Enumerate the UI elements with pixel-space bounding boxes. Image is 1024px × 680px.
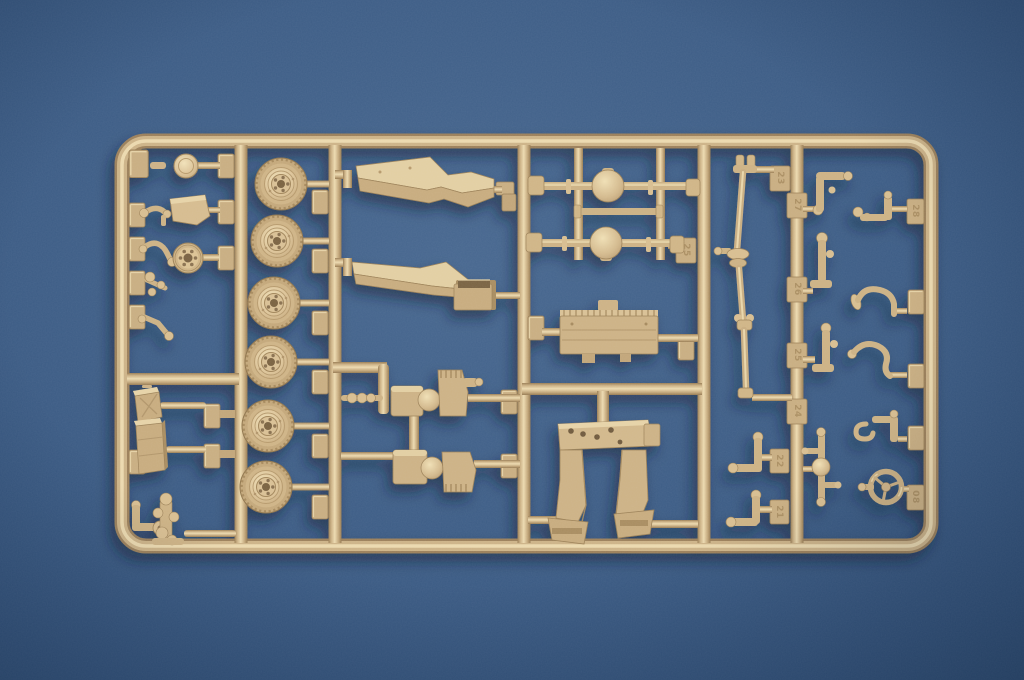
sprue-photograph: 23 27 26 25 24 22 21 25 28 08 <box>0 0 1024 680</box>
vignette-overlay <box>0 0 1024 680</box>
photo-stage: 23 27 26 25 24 22 21 25 28 08 <box>0 0 1024 680</box>
